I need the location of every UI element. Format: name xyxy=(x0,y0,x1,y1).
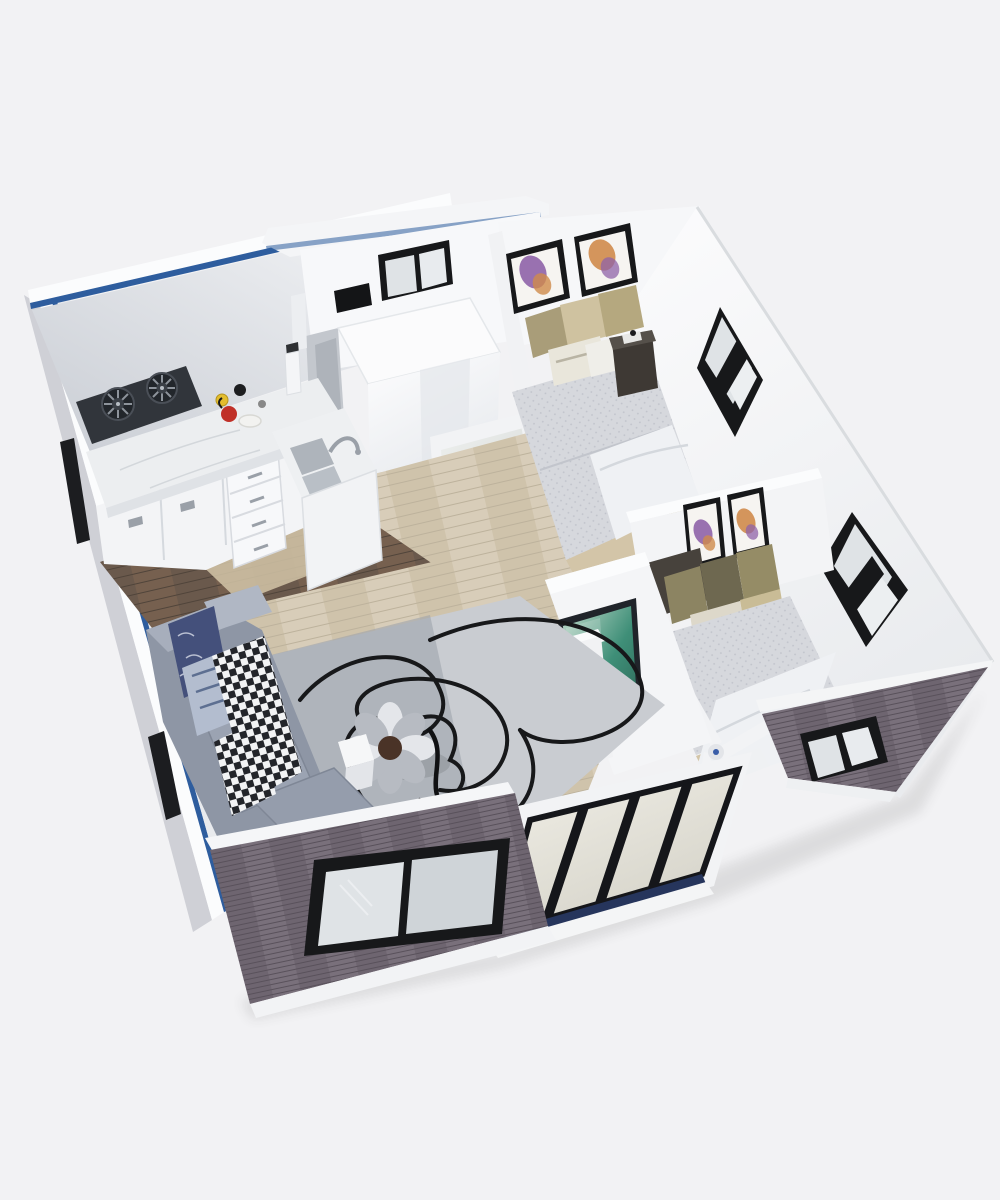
red-kettle xyxy=(221,406,237,422)
black-mug xyxy=(234,384,246,396)
burner-2 xyxy=(147,373,177,403)
house-render-canvas xyxy=(0,0,1000,1200)
floorplan-render: Isometric 3D cutaway rendering of a smal… xyxy=(0,0,1000,1200)
gray-jar xyxy=(258,400,266,408)
burner-1 xyxy=(102,388,134,420)
plates xyxy=(239,415,261,427)
yellow-cup xyxy=(216,394,228,406)
